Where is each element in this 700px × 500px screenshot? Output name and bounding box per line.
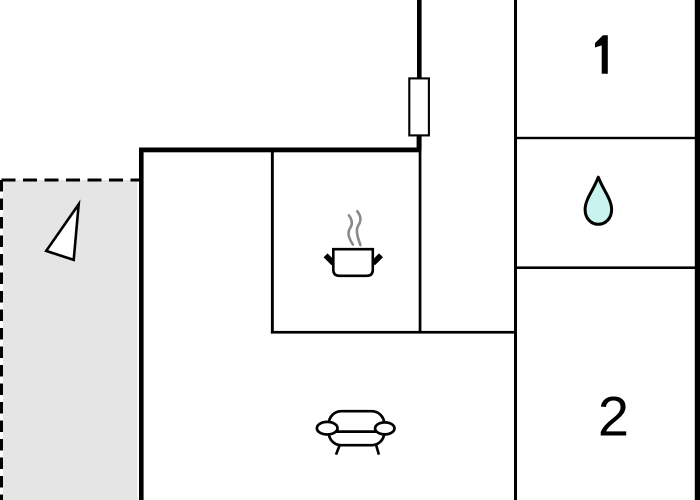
svg-text:2: 2	[598, 385, 629, 448]
